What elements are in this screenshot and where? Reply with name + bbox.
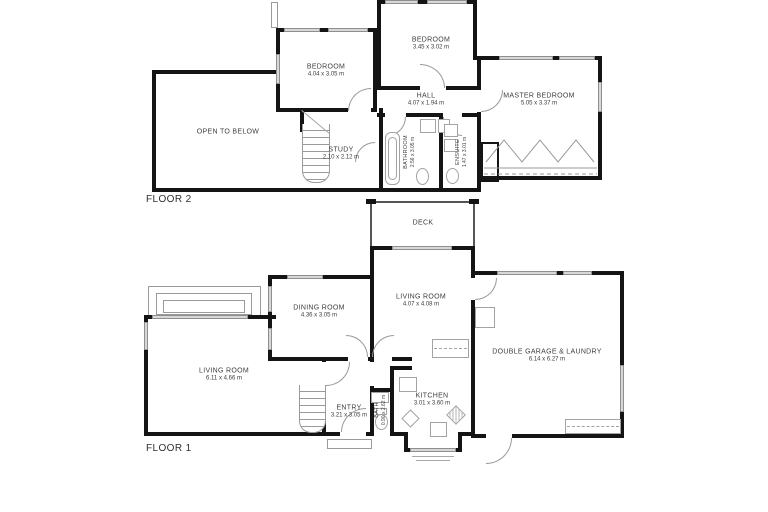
window xyxy=(268,286,272,312)
room-label-bedroom-left: BEDROOM 4.04 x 3.05 m xyxy=(307,63,345,80)
room-label-open-to-below: OPEN TO BELOW xyxy=(197,127,259,136)
wall xyxy=(379,108,383,192)
fixture-line xyxy=(412,456,454,457)
wall xyxy=(268,357,348,361)
room-label-deck: DECK xyxy=(413,218,434,227)
door-arc xyxy=(348,88,371,111)
wall xyxy=(392,357,412,361)
room-label-dining-room: DINING ROOM 4.36 x 3.05 m xyxy=(293,304,345,321)
wall xyxy=(390,366,412,370)
wall xyxy=(370,250,374,361)
window xyxy=(559,56,595,60)
window xyxy=(499,56,553,60)
window xyxy=(287,275,323,279)
window xyxy=(563,271,592,275)
wall xyxy=(462,113,480,117)
wall xyxy=(366,199,376,204)
window xyxy=(598,82,602,112)
wall xyxy=(469,199,479,204)
room-label-master-bedroom: MASTER BEDROOM 5.05 x 3.37 m xyxy=(503,92,574,109)
wall xyxy=(390,366,394,436)
wall xyxy=(473,201,475,250)
room-label-bath: BATH 0.90 x 2.62 m xyxy=(374,395,388,425)
wall xyxy=(377,0,381,90)
room-label-bedroom-top: BEDROOM 3.45 x 3.02 m xyxy=(412,36,450,53)
door-arc xyxy=(475,278,497,300)
fixture xyxy=(401,409,419,427)
wall xyxy=(152,70,156,192)
window xyxy=(276,54,280,84)
wall xyxy=(371,108,377,112)
fixture xyxy=(475,307,495,328)
room-label-study: STUDY 2.10 x 2.12 m xyxy=(323,146,359,163)
door-arc xyxy=(420,64,445,88)
wall xyxy=(152,70,280,74)
fixture xyxy=(430,422,447,437)
wall xyxy=(276,108,348,112)
staircase-lower xyxy=(299,385,326,433)
wall xyxy=(471,271,497,275)
wall xyxy=(323,275,374,279)
door-arc xyxy=(346,335,368,357)
door-arc xyxy=(481,90,503,112)
fixture-outline xyxy=(271,2,278,28)
window xyxy=(152,315,248,319)
wall xyxy=(406,113,443,117)
room-label-garage: DOUBLE GARAGE & LAUNDRY 6.14 x 6.27 m xyxy=(492,348,601,365)
window xyxy=(385,0,418,4)
wall xyxy=(446,86,480,90)
window xyxy=(620,365,624,412)
wall xyxy=(152,188,481,192)
window xyxy=(284,28,320,32)
window xyxy=(410,448,456,452)
fixture xyxy=(446,168,459,184)
fixture-dashed-line xyxy=(567,426,619,427)
door-arc xyxy=(372,335,394,357)
room-label-entry: ENTRY 3.21 x 3.05 m xyxy=(331,404,367,421)
wall xyxy=(370,357,374,362)
room-label-kitchen: KITCHEN 3.01 x 3.60 m xyxy=(414,392,450,409)
window xyxy=(497,271,557,275)
room-label-ensuite: ENSUITE 1.47 x 3.01 m xyxy=(455,137,469,167)
fixture-outline xyxy=(163,300,245,313)
floor-plan: OPEN TO BELOW BEDROOM 4.04 x 3.05 m BEDR… xyxy=(0,0,768,512)
fixture-dashed-line xyxy=(434,348,467,349)
wall xyxy=(370,201,372,250)
fixture-line xyxy=(416,460,450,461)
fixture xyxy=(420,119,436,133)
room-label-living-room-main: LIVING ROOM 6.11 x 4.66 m xyxy=(199,367,249,384)
room-label-living-room-small: LIVING ROOM 4.07 x 4.08 m xyxy=(396,293,446,310)
fixture-outline xyxy=(327,439,372,449)
wardrobe-icon xyxy=(483,134,599,178)
door-arc xyxy=(326,362,350,386)
window xyxy=(268,328,272,350)
floor1-label: FLOOR 1 xyxy=(146,443,192,454)
window xyxy=(427,0,467,4)
fixture xyxy=(388,137,397,180)
wall xyxy=(512,434,624,438)
wall xyxy=(268,275,287,279)
fixture xyxy=(416,168,429,185)
window xyxy=(392,246,452,250)
floor2-label: FLOOR 2 xyxy=(146,194,192,205)
wall xyxy=(477,56,481,90)
fixture xyxy=(399,377,417,392)
wall xyxy=(456,448,462,452)
window xyxy=(328,28,368,32)
door-arc xyxy=(486,438,512,464)
room-label-hall: HALL 4.07 x 1.94 m xyxy=(408,92,444,109)
wall xyxy=(473,0,477,60)
wall xyxy=(370,201,475,203)
wall xyxy=(377,86,420,90)
window xyxy=(144,322,148,350)
wall xyxy=(620,271,624,438)
fixture xyxy=(444,124,458,137)
room-label-bathroom: BATHROOM 2.56 x 3.05 m xyxy=(403,135,417,169)
